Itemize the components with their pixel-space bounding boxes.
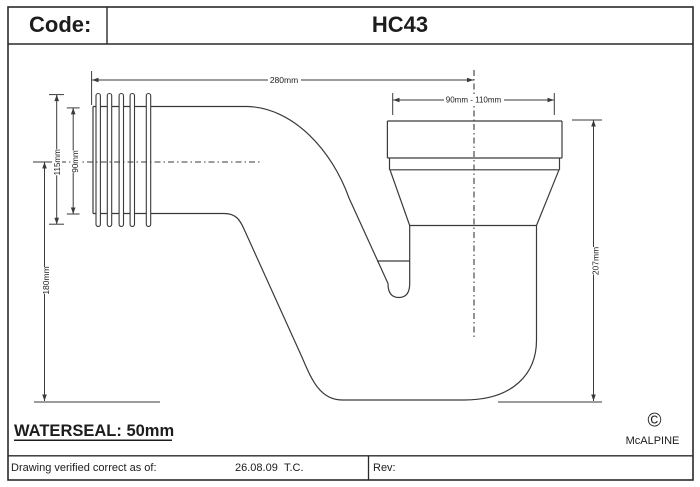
- svg-text:180mm: 180mm: [41, 266, 51, 294]
- svg-text:115mm: 115mm: [53, 149, 62, 175]
- svg-text:207mm: 207mm: [590, 247, 600, 275]
- svg-text:Code:: Code:: [29, 12, 91, 37]
- svg-text:90mm: 90mm: [71, 150, 80, 173]
- svg-text:26.08.09: 26.08.09: [235, 462, 278, 474]
- svg-text:Drawing verified correct as o: Drawing verified correct as of:: [11, 462, 157, 474]
- svg-text:90mm - 110mm: 90mm - 110mm: [446, 96, 502, 105]
- svg-text:©: ©: [648, 411, 662, 432]
- svg-text:WATERSEAL: 50mm: WATERSEAL: 50mm: [14, 422, 174, 440]
- svg-text:HC43: HC43: [372, 12, 428, 37]
- svg-text:McALPINE: McALPINE: [626, 435, 680, 447]
- svg-text:280mm: 280mm: [270, 75, 298, 85]
- svg-text:Rev:: Rev:: [373, 462, 396, 474]
- svg-text:T.C.: T.C.: [284, 462, 304, 474]
